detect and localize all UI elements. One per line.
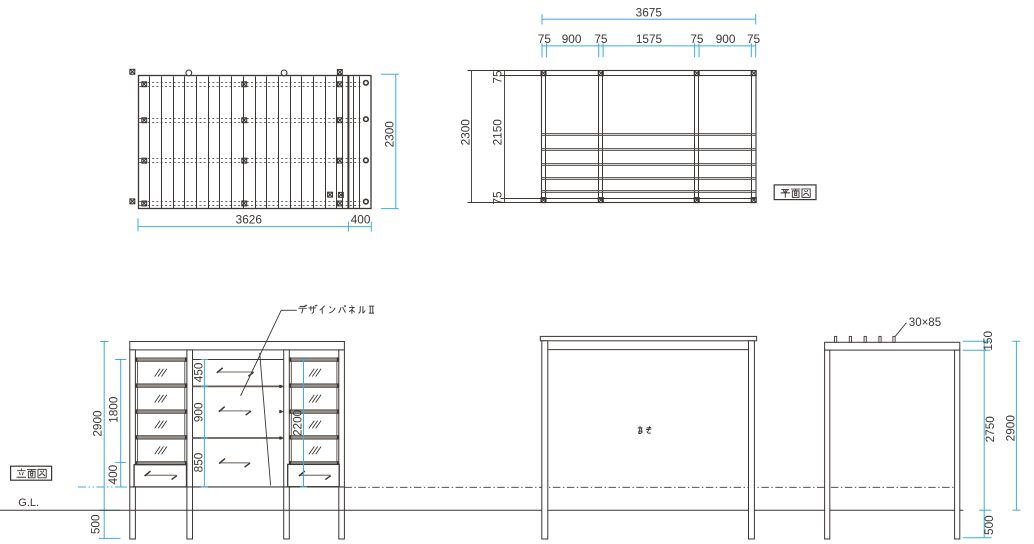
svg-text:30×85: 30×85 [909, 317, 941, 329]
svg-text:2200: 2200 [291, 409, 305, 436]
svg-text:75: 75 [747, 32, 761, 46]
svg-text:1800: 1800 [107, 396, 121, 423]
svg-text:2900: 2900 [1004, 415, 1018, 442]
svg-text:900: 900 [716, 32, 736, 46]
svg-text:3675: 3675 [636, 6, 663, 20]
svg-text:400: 400 [106, 464, 120, 484]
svg-text:G.L.: G.L. [18, 497, 39, 509]
svg-text:2750: 2750 [983, 416, 997, 443]
svg-text:850: 850 [191, 452, 205, 472]
svg-text:75: 75 [594, 32, 608, 46]
svg-text:400: 400 [351, 213, 371, 227]
svg-text:75: 75 [538, 32, 552, 46]
svg-text:2300: 2300 [459, 119, 473, 146]
svg-text:500: 500 [982, 515, 996, 535]
svg-text:500: 500 [89, 514, 103, 534]
svg-text:900: 900 [562, 32, 582, 46]
svg-text:2900: 2900 [90, 410, 104, 437]
svg-text:2300: 2300 [383, 121, 397, 148]
svg-text:150: 150 [981, 331, 995, 351]
svg-text:900: 900 [191, 402, 205, 422]
svg-text:75: 75 [490, 70, 504, 84]
svg-text:3626: 3626 [236, 213, 263, 227]
svg-text:450: 450 [191, 362, 205, 382]
svg-text:2150: 2150 [490, 119, 504, 146]
svg-text:1575: 1575 [636, 32, 663, 46]
svg-text:75: 75 [690, 32, 704, 46]
